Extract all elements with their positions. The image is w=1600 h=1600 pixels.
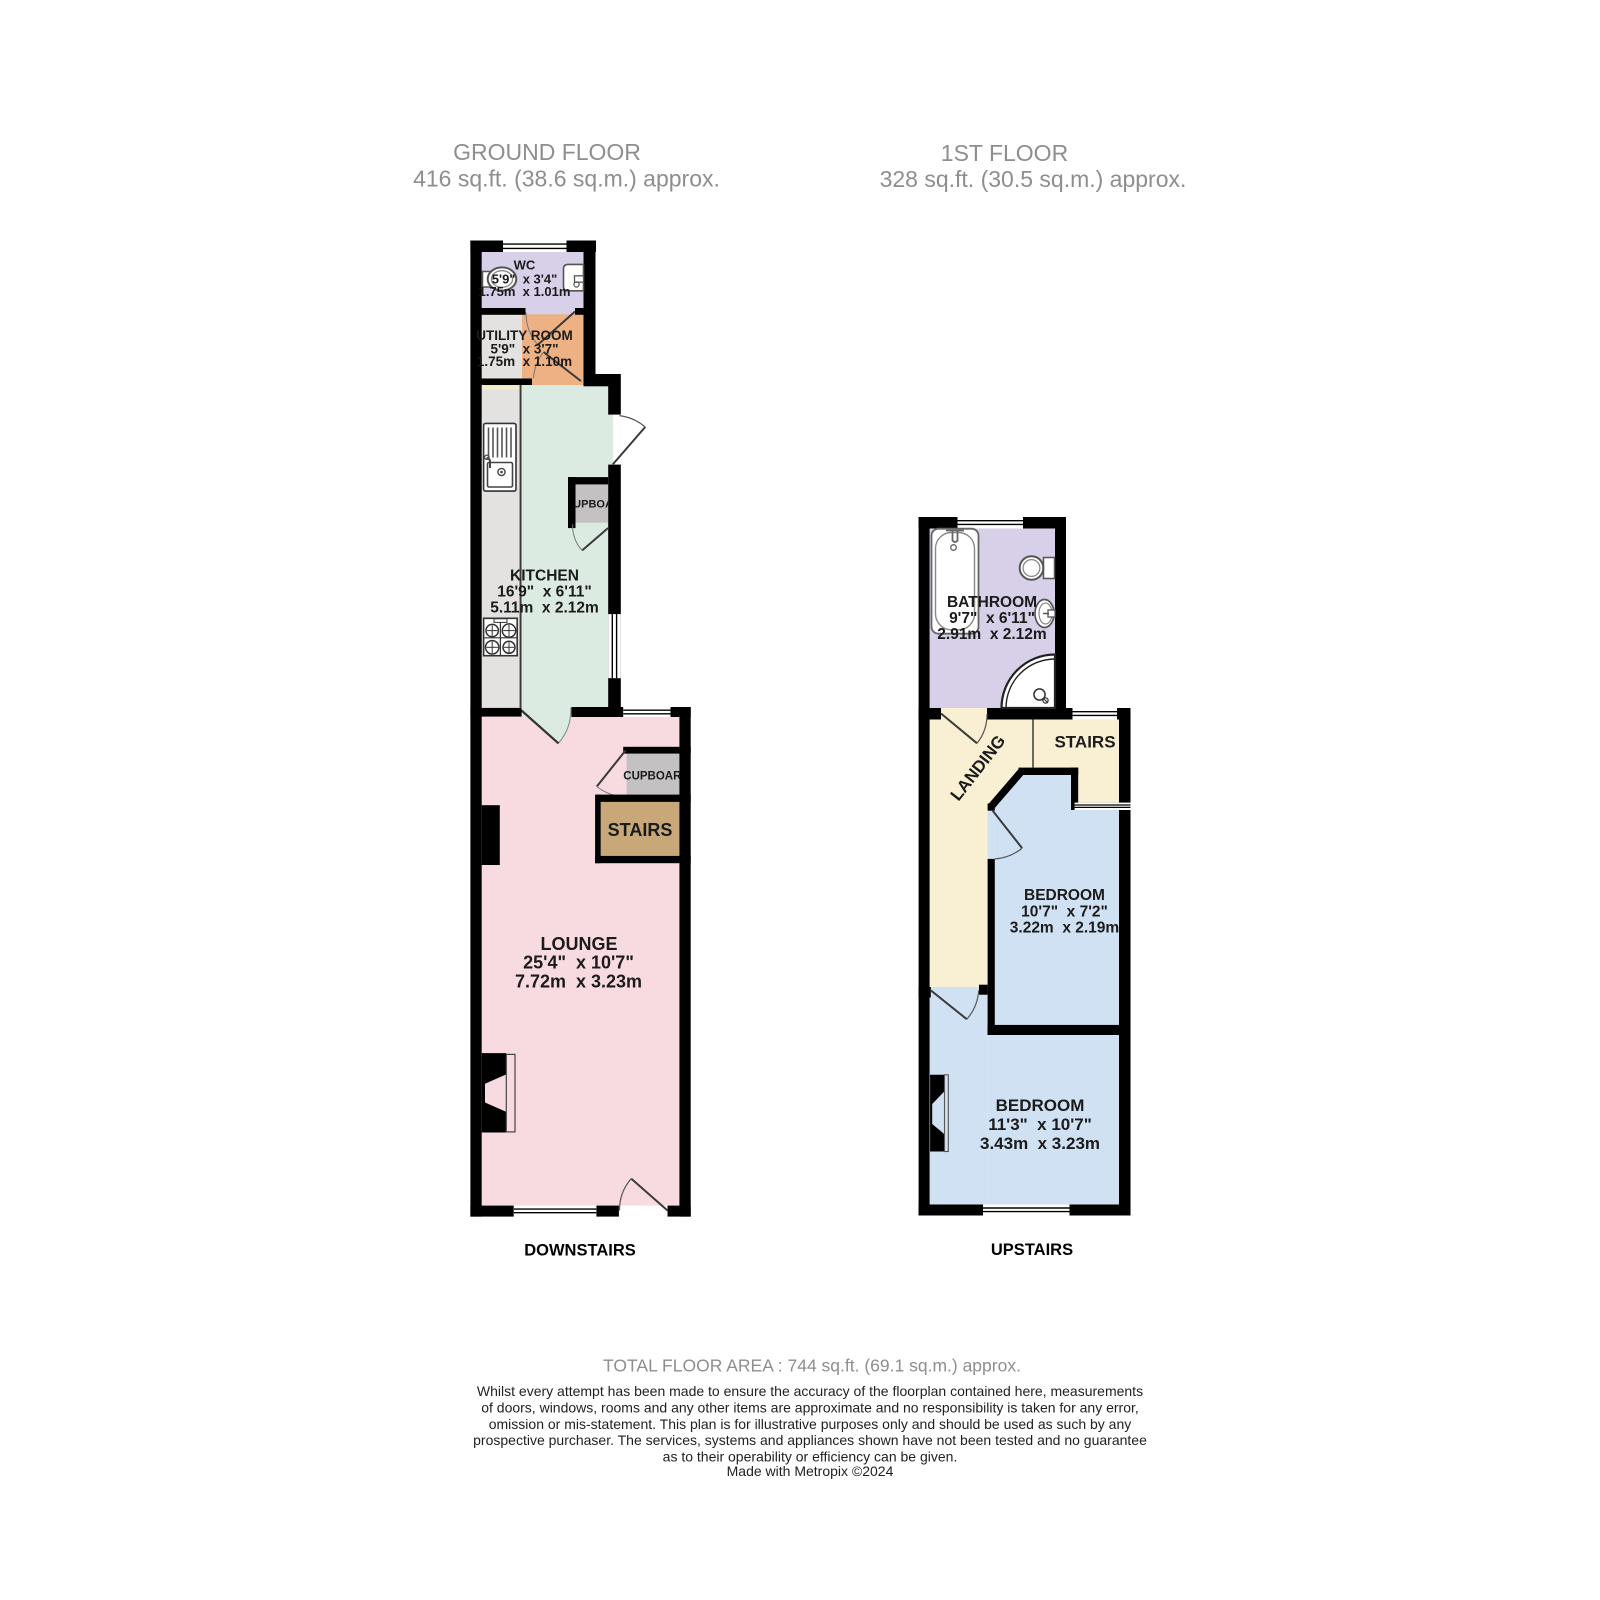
- svg-text:1.75m x 1.01m: 1.75m x 1.01m: [479, 284, 571, 299]
- svg-text:25'4" x 10'7": 25'4" x 10'7": [523, 953, 634, 973]
- svg-text:Made with Metropix ©2024: Made with Metropix ©2024: [727, 1463, 894, 1479]
- svg-text:WC: WC: [514, 258, 536, 273]
- svg-text:1ST FLOOR: 1ST FLOOR: [941, 140, 1068, 166]
- svg-text:DOWNSTAIRS: DOWNSTAIRS: [524, 1242, 636, 1260]
- svg-text:5.11m x 2.12m: 5.11m x 2.12m: [490, 600, 599, 617]
- svg-text:omission or mis-statement. Thi: omission or mis-statement. This plan is …: [489, 1416, 1132, 1432]
- svg-text:2.91m x 2.12m: 2.91m x 2.12m: [937, 626, 1046, 643]
- svg-text:328 sq.ft. (30.5 sq.m.) approx: 328 sq.ft. (30.5 sq.m.) approx.: [880, 166, 1187, 192]
- svg-text:LOUNGE: LOUNGE: [540, 934, 617, 954]
- svg-text:11'3" x 10'7": 11'3" x 10'7": [988, 1115, 1092, 1134]
- svg-text:UPSTAIRS: UPSTAIRS: [991, 1241, 1073, 1259]
- svg-text:3.43m x 3.23m: 3.43m x 3.23m: [980, 1134, 1100, 1153]
- svg-text:of doors, windows, rooms and a: of doors, windows, rooms and any other i…: [481, 1399, 1139, 1415]
- svg-text:10'7" x 7'2": 10'7" x 7'2": [1021, 904, 1108, 921]
- svg-text:STAIRS: STAIRS: [608, 820, 673, 840]
- svg-text:STAIRS: STAIRS: [1054, 733, 1115, 752]
- svg-text:16'9" x 6'11": 16'9" x 6'11": [497, 584, 591, 601]
- svg-text:BEDROOM: BEDROOM: [1024, 887, 1105, 904]
- svg-text:7.72m x 3.23m: 7.72m x 3.23m: [515, 972, 642, 992]
- svg-text:BATHROOM: BATHROOM: [947, 594, 1037, 611]
- svg-text:BEDROOM: BEDROOM: [996, 1096, 1085, 1115]
- svg-text:9'7" x 6'11": 9'7" x 6'11": [949, 610, 1035, 627]
- svg-text:Whilst every attempt has been: Whilst every attempt has been made to en…: [477, 1383, 1143, 1399]
- svg-text:prospective purchaser. The ser: prospective purchaser. The services, sys…: [473, 1432, 1147, 1448]
- svg-text:1.75m x 1.10m: 1.75m x 1.10m: [477, 354, 572, 369]
- svg-text:TOTAL FLOOR AREA : 744 sq.ft.: TOTAL FLOOR AREA : 744 sq.ft. (69.1 sq.m…: [603, 1356, 1021, 1376]
- svg-text:3.22m x 2.19m: 3.22m x 2.19m: [1010, 920, 1119, 937]
- svg-text:KITCHEN: KITCHEN: [510, 568, 579, 585]
- svg-text:416 sq.ft. (38.6 sq.m.) approx: 416 sq.ft. (38.6 sq.m.) approx.: [413, 166, 720, 192]
- svg-text:GROUND FLOOR: GROUND FLOOR: [453, 139, 641, 165]
